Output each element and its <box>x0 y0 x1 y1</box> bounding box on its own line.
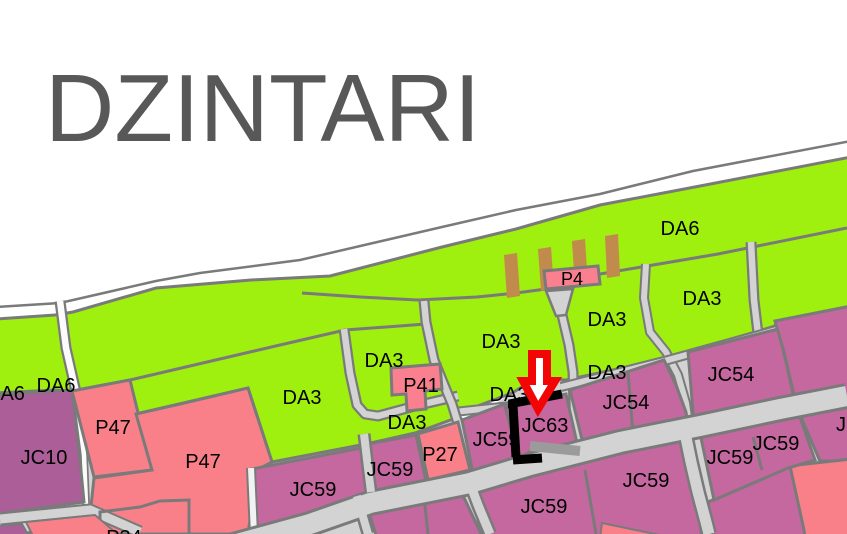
svg-text:DA3: DA3 <box>588 362 627 384</box>
svg-text:JC59: JC59 <box>753 433 800 455</box>
svg-text:DA3: DA3 <box>388 412 427 434</box>
svg-text:DA6: DA6 <box>0 383 25 405</box>
svg-text:JC59: JC59 <box>623 470 670 492</box>
svg-text:JC59: JC59 <box>290 479 337 501</box>
svg-text:JC59: JC59 <box>521 496 568 518</box>
svg-text:P34: P34 <box>106 527 142 534</box>
svg-text:P47: P47 <box>185 451 221 473</box>
svg-text:JC63: JC63 <box>522 415 569 437</box>
svg-text:DA6: DA6 <box>661 218 700 240</box>
svg-text:DZINTARI: DZINTARI <box>45 55 481 162</box>
svg-text:JC59: JC59 <box>473 429 520 451</box>
svg-text:P41: P41 <box>403 375 439 397</box>
svg-text:DA3: DA3 <box>482 331 521 353</box>
svg-text:P47: P47 <box>95 417 131 439</box>
svg-text:DA3: DA3 <box>283 387 322 409</box>
svg-text:JC10: JC10 <box>21 447 68 469</box>
svg-text:JC54: JC54 <box>708 364 755 386</box>
svg-text:JC59: JC59 <box>836 414 847 436</box>
svg-text:P4: P4 <box>561 269 583 289</box>
svg-text:DA3: DA3 <box>588 309 627 331</box>
svg-text:DA3: DA3 <box>683 288 722 310</box>
svg-text:JC54: JC54 <box>603 392 650 414</box>
svg-text:JC59: JC59 <box>367 459 414 481</box>
svg-text:DA6: DA6 <box>37 375 76 397</box>
svg-text:JC59: JC59 <box>707 447 754 469</box>
svg-text:DA3: DA3 <box>365 350 404 372</box>
svg-text:P27: P27 <box>422 444 458 466</box>
